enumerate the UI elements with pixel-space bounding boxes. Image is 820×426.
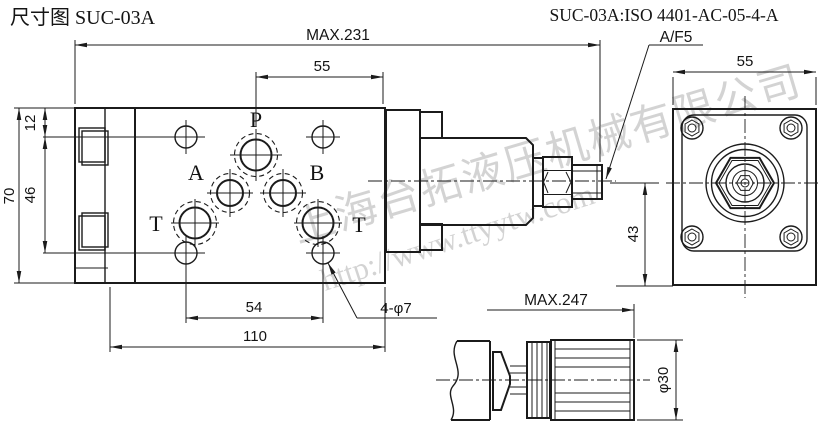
- dim-top-offset: 12: [22, 115, 39, 132]
- drawing-title: 尺寸图 SUC-03A: [10, 6, 156, 29]
- end-cap: [75, 108, 135, 283]
- port-label-a: A: [188, 160, 204, 185]
- port-label-b: B: [310, 160, 325, 185]
- spec-label: SUC-03A:ISO 4401-AC-05-4-A: [550, 5, 779, 25]
- dim-p-to-edge: 55: [314, 58, 331, 75]
- watermark: 上海台拓液压机械有限公司 http://www.ttyytw.com: [288, 59, 807, 298]
- port-t-left: [171, 199, 219, 247]
- handle-view: MAX.247 φ30: [436, 292, 683, 420]
- port-a: [207, 169, 253, 217]
- dim-height: 70: [1, 188, 18, 205]
- technical-drawing: 上海台拓液压机械有限公司 http://www.ttyytw.com 尺寸图 S…: [0, 0, 820, 426]
- dim-overall-length: MAX.231: [306, 27, 370, 44]
- end-cap-notch-top: [79, 128, 108, 165]
- wrench-flat-label: A/F5: [660, 29, 693, 46]
- dim-max-length: MAX.247: [524, 292, 588, 309]
- dim-center-to-bottom: 43: [625, 226, 642, 243]
- dim-bolt-cols: 54: [246, 299, 263, 316]
- dim-knob-diameter: φ30: [655, 367, 672, 393]
- dim-mounting-holes: 4-φ7: [380, 300, 411, 317]
- hex-adapter: [493, 352, 510, 410]
- end-cap-notch-bottom: [79, 213, 108, 250]
- dim-width: 110: [243, 328, 267, 345]
- handle-dimensions: MAX.247 φ30: [487, 292, 683, 420]
- dim-bolt-rows: 46: [22, 187, 39, 204]
- port-p: [230, 129, 282, 181]
- dim-flange-width: 55: [737, 53, 754, 70]
- port-label-t-right: T: [352, 212, 366, 237]
- port-label-t-left: T: [149, 211, 163, 236]
- break-line: [450, 341, 458, 420]
